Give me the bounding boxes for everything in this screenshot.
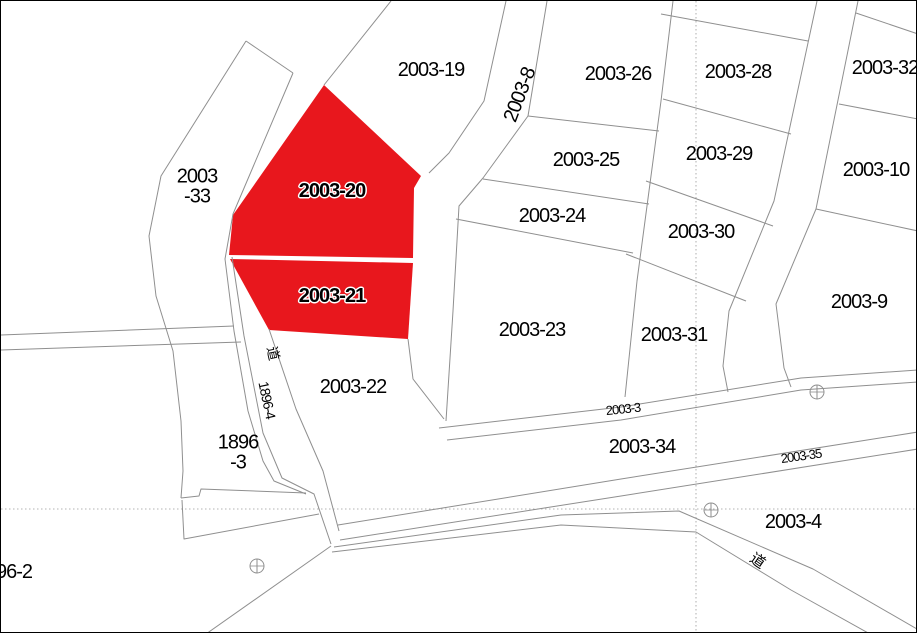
parcel-label-2003-26: 2003-26 — [585, 64, 651, 84]
parcel-label-2003-3: 2003-3 — [605, 401, 641, 418]
parcel-shape-2003-20[interactable] — [229, 85, 421, 258]
parcel-label-2003-21[interactable]: 2003-21 — [299, 286, 365, 306]
survey-markers — [250, 385, 824, 573]
parcel-label-2003-34: 2003-34 — [609, 437, 675, 457]
map-drawing — [1, 1, 917, 633]
grid-dotted-lines — [1, 1, 917, 633]
parcel-label-1896-3: 1896-3 — [218, 433, 259, 474]
parcel-label-2003-29: 2003-29 — [686, 144, 752, 164]
survey-marker — [810, 385, 824, 399]
parcel-boundary-lines — [1, 1, 917, 633]
parcel-label-2003-33: 2003-33 — [177, 167, 218, 208]
survey-marker — [704, 503, 718, 517]
parcel-label-2003-28: 2003-28 — [705, 62, 771, 82]
parcel-label-2003-20[interactable]: 2003-20 — [299, 181, 365, 201]
parcel-label-2003-32: 2003-32 — [852, 58, 917, 78]
cadastral-map-canvas: 2003-192003-262003-282003-322003-252003-… — [0, 0, 917, 633]
parcel-label-2003-23: 2003-23 — [499, 320, 565, 340]
parcel-label-2003-9: 2003-9 — [831, 292, 887, 312]
parcel-label-96-2: 96-2 — [0, 562, 32, 582]
parcel-label-2003-19: 2003-19 — [398, 60, 464, 80]
parcel-label-2003-25: 2003-25 — [553, 150, 619, 170]
survey-marker — [250, 559, 264, 573]
parcel-label-2003-10: 2003-10 — [843, 160, 909, 180]
parcel-label-2003-30: 2003-30 — [668, 222, 734, 242]
parcel-label-2003-4: 2003-4 — [765, 512, 821, 532]
parcel-label-2003-24: 2003-24 — [519, 206, 585, 226]
parcel-label-2003-31: 2003-31 — [641, 325, 707, 345]
parcel-label-2003-22: 2003-22 — [320, 377, 386, 397]
